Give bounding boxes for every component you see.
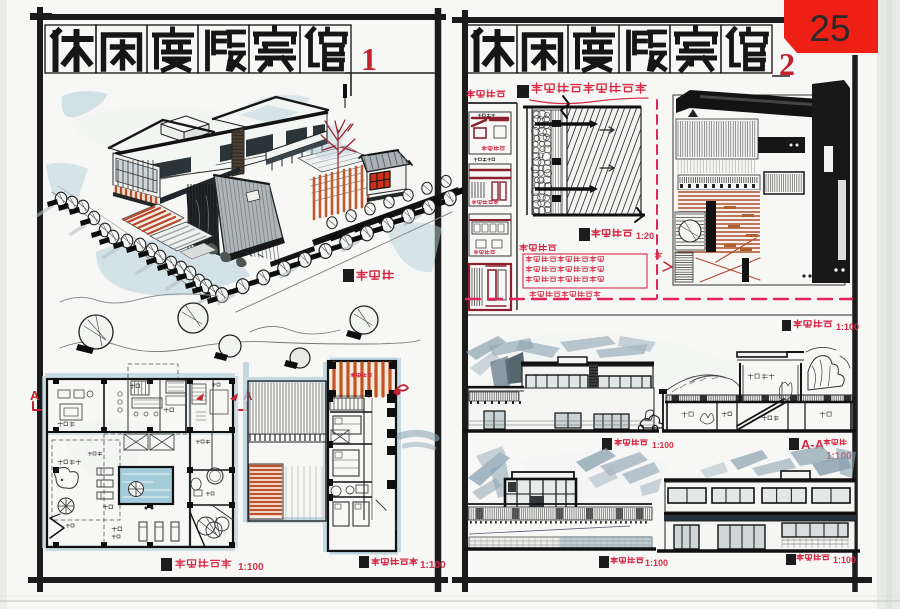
svg-text:1:100: 1:100 [238, 562, 264, 573]
svg-text:1:100: 1:100 [645, 558, 668, 568]
svg-text:25: 25 [809, 8, 850, 49]
svg-text:1:100: 1:100 [836, 322, 859, 332]
svg-text:1:20: 1:20 [636, 231, 654, 241]
svg-text:1:100: 1:100 [652, 440, 674, 450]
svg-text:1:100: 1:100 [420, 560, 446, 571]
svg-text:1:100: 1:100 [833, 555, 856, 565]
svg-text:1: 1 [361, 41, 377, 77]
svg-text:A: A [30, 388, 40, 403]
